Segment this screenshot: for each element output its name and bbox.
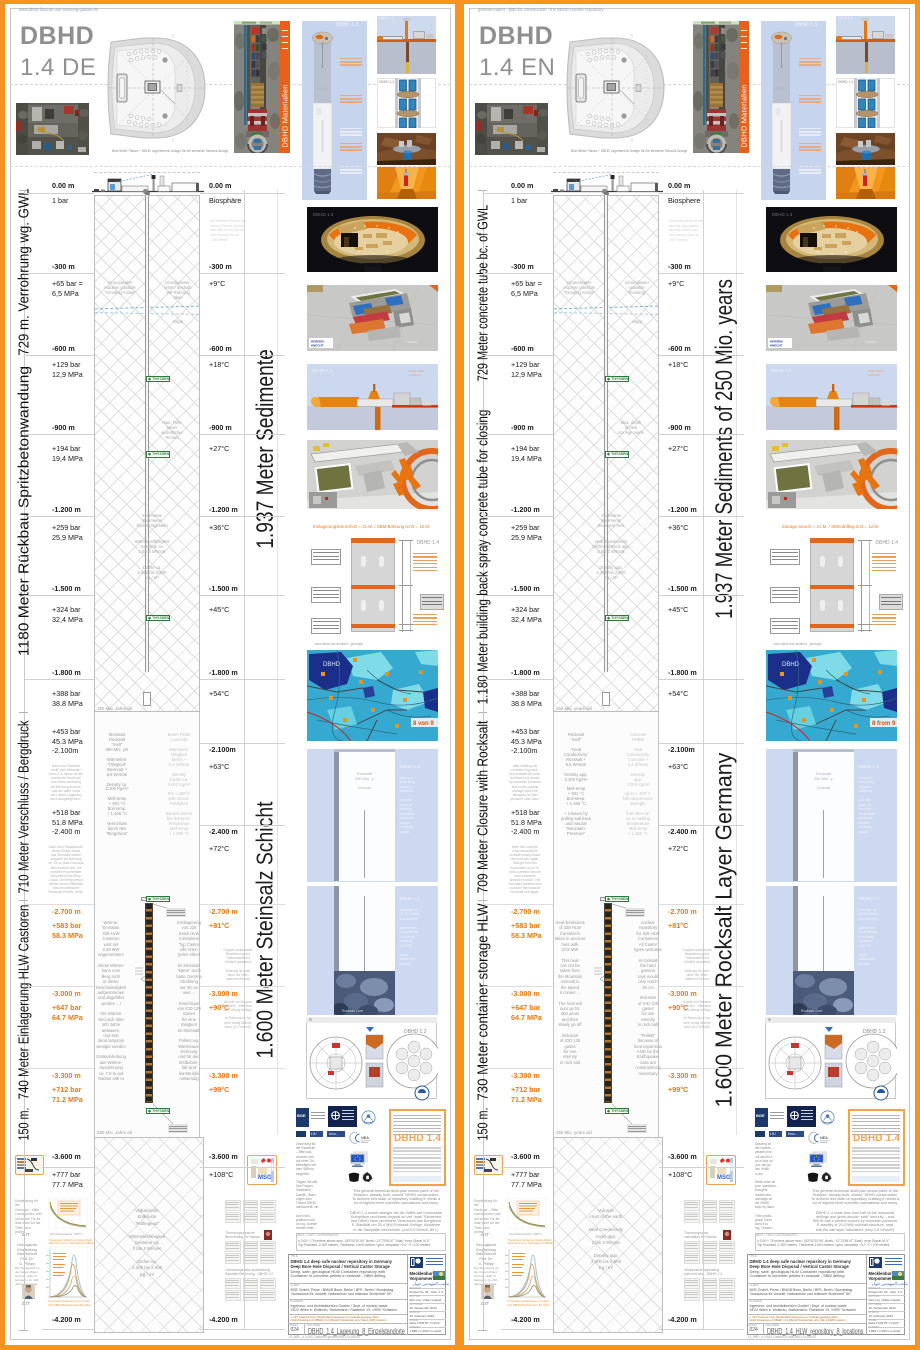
svg-text:DBHD 1.3: DBHD 1.3 [312,368,333,373]
svg-text:Rocksalt Core: Rocksalt Core [801,1009,822,1013]
svg-text:DBHD: DBHD [323,662,341,668]
svg-text:DBHD: DBHD [315,86,326,91]
svg-text:buildings: buildings [409,373,421,377]
svg-text:DBHD: DBHD [774,86,785,91]
svg-text:DBHD 1.2: DBHD 1.2 [863,1029,886,1035]
svg-text:buildings: buildings [868,373,880,377]
svg-text:KNECHT: KNECHT [311,343,324,347]
svg-text:8 von 9: 8 von 9 [413,721,434,727]
svg-text:8 from 9: 8 from 9 [872,721,896,727]
svg-text:DBHD 1.3: DBHD 1.3 [313,212,334,217]
svg-text:DBHD: DBHD [782,662,800,668]
svg-text:DBHD 1.3: DBHD 1.3 [771,368,792,373]
svg-text:NEA: NEA [361,1136,369,1140]
svg-text:DBHD 1.2: DBHD 1.2 [404,1029,427,1035]
svg-text:MSG: MSG [258,1175,272,1181]
svg-text:Schacht: Schacht [407,340,417,344]
svg-text:Schacht: Schacht [866,340,876,344]
svg-text:DBHD 1.3: DBHD 1.3 [772,212,793,217]
svg-text:Rocksalt Core: Rocksalt Core [342,1009,363,1013]
svg-text:MSG: MSG [717,1175,731,1181]
svg-text:KNECHT: KNECHT [770,343,783,347]
svg-text:NEA: NEA [820,1136,828,1140]
